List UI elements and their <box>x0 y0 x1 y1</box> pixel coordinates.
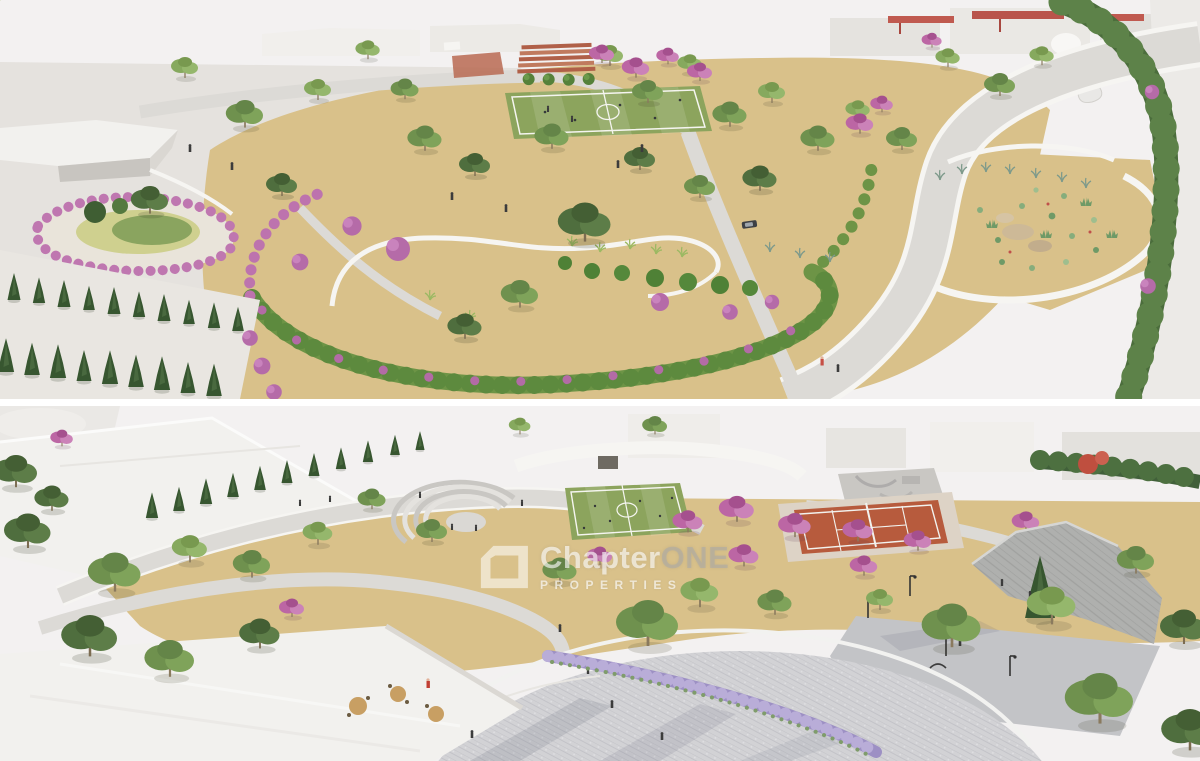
red-tree <box>1078 454 1098 474</box>
bottom-render-panel <box>0 406 1200 761</box>
screenshot-canvas: ChapterONE PROPERTIES <box>0 0 1200 761</box>
wall-doorway <box>598 456 618 469</box>
football-pitch <box>505 86 712 139</box>
top-render-panel <box>0 0 1200 399</box>
football-pitch <box>565 483 692 540</box>
person-red <box>427 681 430 688</box>
panel-divider <box>0 399 1200 406</box>
